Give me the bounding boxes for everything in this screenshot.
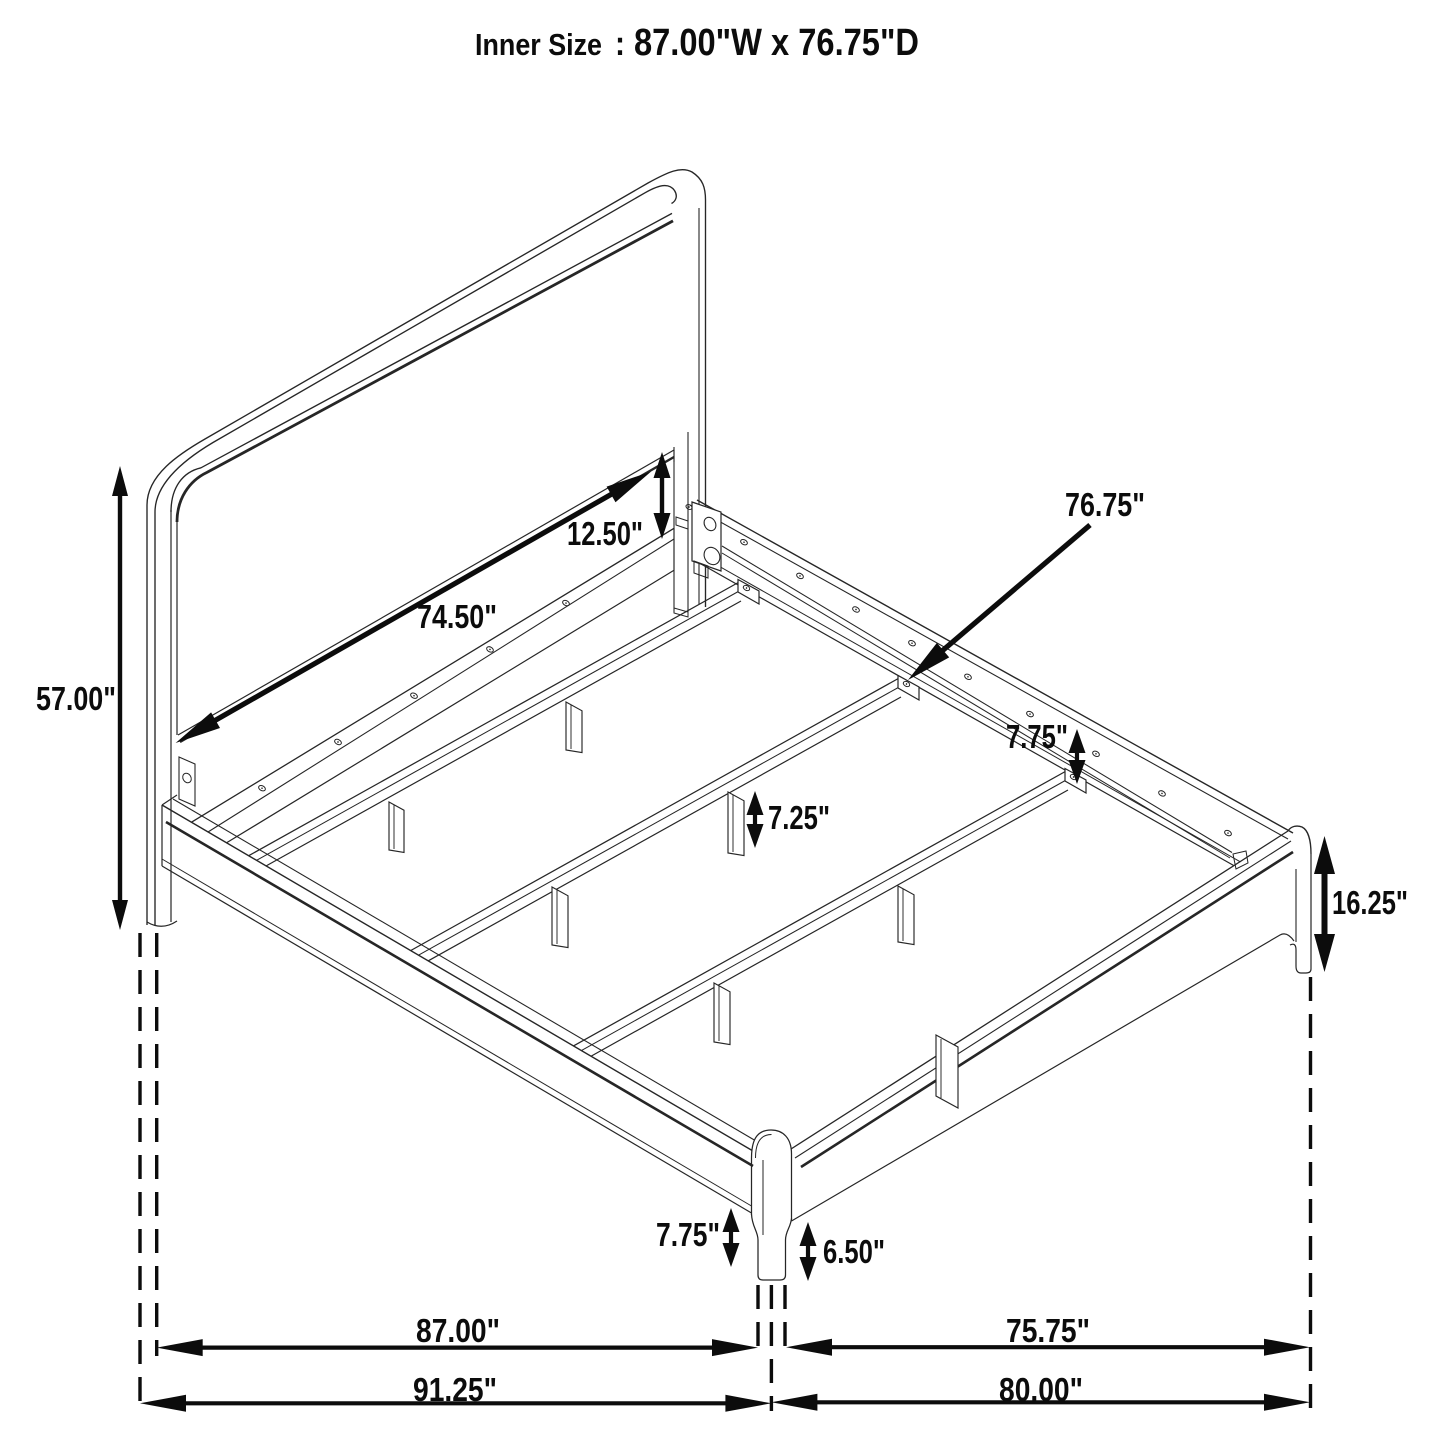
svg-text:87.00"W x 76.75"D: 87.00"W x 76.75"D (634, 22, 919, 64)
svg-text:74.50": 74.50" (417, 598, 497, 635)
svg-text:16.25": 16.25" (1332, 884, 1408, 921)
svg-text:Inner Size: Inner Size (475, 27, 602, 62)
svg-text:7.75": 7.75" (656, 1216, 720, 1253)
svg-text:12.50": 12.50" (567, 515, 643, 552)
svg-text:7.25": 7.25" (768, 799, 830, 836)
svg-text:57.00": 57.00" (36, 680, 116, 717)
svg-text:91.25": 91.25" (413, 1371, 497, 1408)
svg-text:6.50": 6.50" (823, 1233, 885, 1270)
svg-text:76.75": 76.75" (1065, 486, 1145, 523)
svg-text:75.75": 75.75" (1006, 1312, 1090, 1349)
svg-text::: : (615, 25, 625, 63)
svg-text:7.75": 7.75" (1006, 718, 1068, 755)
svg-text:80.00": 80.00" (999, 1371, 1083, 1408)
svg-text:87.00": 87.00" (416, 1312, 500, 1349)
